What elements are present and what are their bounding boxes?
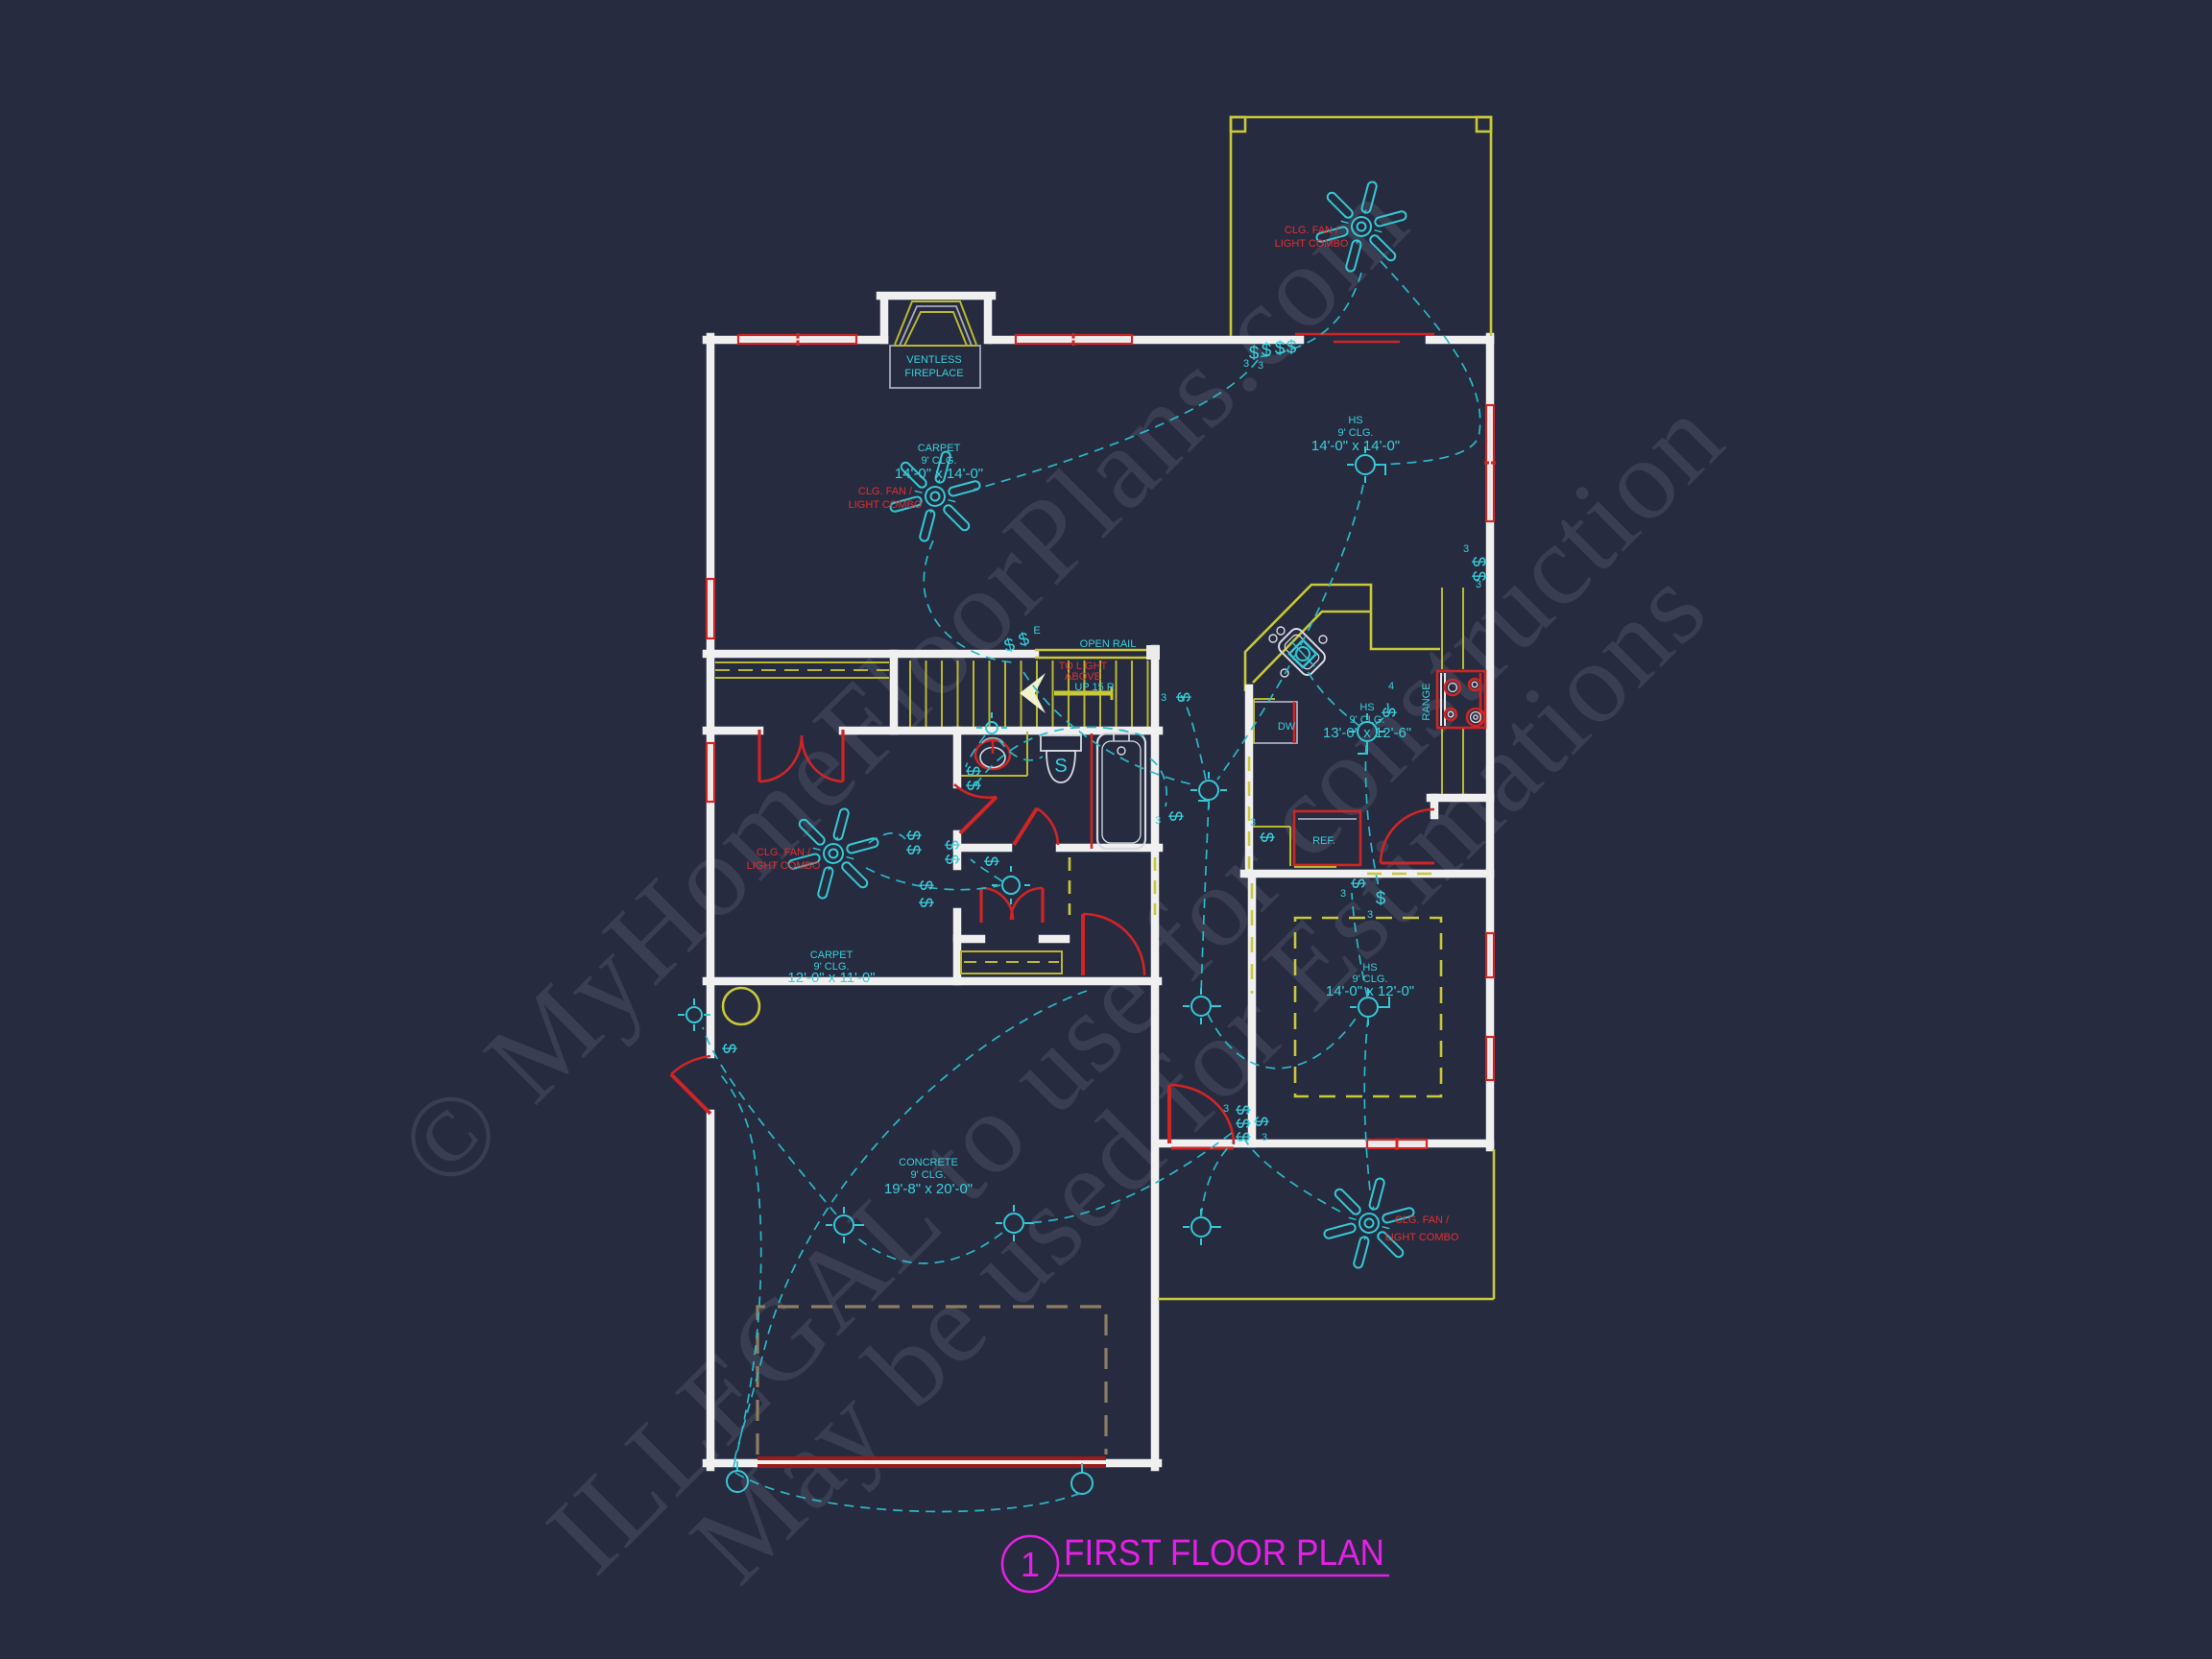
svg-text:VENTLESS: VENTLESS xyxy=(906,354,961,366)
svg-text:CARPET: CARPET xyxy=(918,443,961,454)
svg-text:LIGHT COMBO: LIGHT COMBO xyxy=(747,860,821,872)
svg-text:$: $ xyxy=(915,898,935,908)
svg-text:LIGHT COMBO: LIGHT COMBO xyxy=(1275,238,1349,250)
svg-text:$: $ xyxy=(941,840,961,851)
svg-text:4: 4 xyxy=(1388,681,1394,692)
svg-text:3: 3 xyxy=(1367,909,1373,921)
svg-text:$: $ xyxy=(902,830,923,841)
svg-text:DW: DW xyxy=(1278,721,1296,733)
svg-text:$: $ xyxy=(962,766,982,777)
svg-text:LIGHT COMBO: LIGHT COMBO xyxy=(849,499,923,511)
svg-text:S: S xyxy=(1054,756,1067,777)
svg-text:$: $ xyxy=(1468,557,1488,567)
svg-text:FIREPLACE: FIREPLACE xyxy=(904,368,963,379)
svg-text:$: $ xyxy=(941,854,961,865)
svg-text:CARPET: CARPET xyxy=(810,950,854,961)
svg-text:14'-0" x 12'-0": 14'-0" x 12'-0" xyxy=(1326,983,1414,999)
svg-text:$: $ xyxy=(1262,341,1272,361)
svg-text:$: $ xyxy=(1256,832,1276,843)
svg-text:13'-0" x 12'-6": 13'-0" x 12'-6" xyxy=(1323,725,1411,741)
svg-text:HS: HS xyxy=(1362,962,1377,974)
svg-text:$: $ xyxy=(1172,692,1192,703)
svg-text:$: $ xyxy=(718,1044,738,1054)
svg-text:$: $ xyxy=(1376,889,1386,909)
svg-text:E: E xyxy=(1033,625,1040,637)
svg-text:LIGHT COMBO: LIGHT COMBO xyxy=(1385,1232,1459,1243)
svg-text:1: 1 xyxy=(1021,1545,1040,1584)
svg-text:$: $ xyxy=(1347,878,1367,889)
svg-text:3: 3 xyxy=(1161,692,1166,704)
svg-text:CLG. FAN /: CLG. FAN / xyxy=(1395,1214,1450,1226)
svg-text:FIRST FLOOR PLAN: FIRST FLOOR PLAN xyxy=(1064,1533,1384,1574)
svg-text:CONCRETE: CONCRETE xyxy=(899,1157,958,1168)
svg-text:3: 3 xyxy=(1463,543,1469,555)
svg-text:3: 3 xyxy=(1476,579,1481,590)
svg-text:$: $ xyxy=(1286,338,1297,358)
svg-text:REF.: REF. xyxy=(1312,835,1335,847)
svg-text:3: 3 xyxy=(1258,360,1263,372)
svg-text:UP 15 R: UP 15 R xyxy=(1074,682,1114,693)
svg-text:OPEN RAIL: OPEN RAIL xyxy=(1080,638,1137,650)
svg-text:$: $ xyxy=(1232,1105,1252,1116)
svg-text:HS: HS xyxy=(1348,415,1362,426)
svg-text:RANGE: RANGE xyxy=(1421,683,1432,720)
svg-text:14'-0" x 14'-0": 14'-0" x 14'-0" xyxy=(895,466,983,482)
svg-text:14'-0" x 14'-0": 14'-0" x 14'-0" xyxy=(1311,438,1400,454)
svg-text:3: 3 xyxy=(1250,817,1256,829)
svg-text:$: $ xyxy=(915,880,935,891)
svg-text:3: 3 xyxy=(1262,1132,1267,1143)
svg-text:19'-8" x 20'-0": 19'-8" x 20'-0" xyxy=(884,1181,973,1197)
svg-text:$: $ xyxy=(1232,1132,1252,1142)
svg-text:9' CLG.: 9' CLG. xyxy=(911,1169,947,1181)
svg-text:$: $ xyxy=(1232,1118,1252,1129)
svg-text:3: 3 xyxy=(1340,888,1346,900)
svg-text:$: $ xyxy=(1250,1117,1270,1127)
svg-text:HS: HS xyxy=(1359,702,1374,713)
svg-text:3: 3 xyxy=(1223,1103,1229,1115)
svg-text:$: $ xyxy=(1275,339,1286,359)
svg-text:$: $ xyxy=(980,856,1000,867)
svg-text:3: 3 xyxy=(1243,358,1249,370)
svg-text:$: $ xyxy=(962,781,982,791)
svg-text:3: 3 xyxy=(1155,815,1161,827)
svg-text:$: $ xyxy=(902,845,923,855)
svg-text:CLG. FAN /: CLG. FAN / xyxy=(757,847,811,858)
svg-text:CLG. FAN /: CLG. FAN / xyxy=(1285,225,1339,236)
svg-text:12'-0" x 11'-0": 12'-0" x 11'-0" xyxy=(787,970,875,986)
svg-text:CLG. FAN /: CLG. FAN / xyxy=(858,486,913,497)
svg-text:$: $ xyxy=(1165,811,1185,822)
